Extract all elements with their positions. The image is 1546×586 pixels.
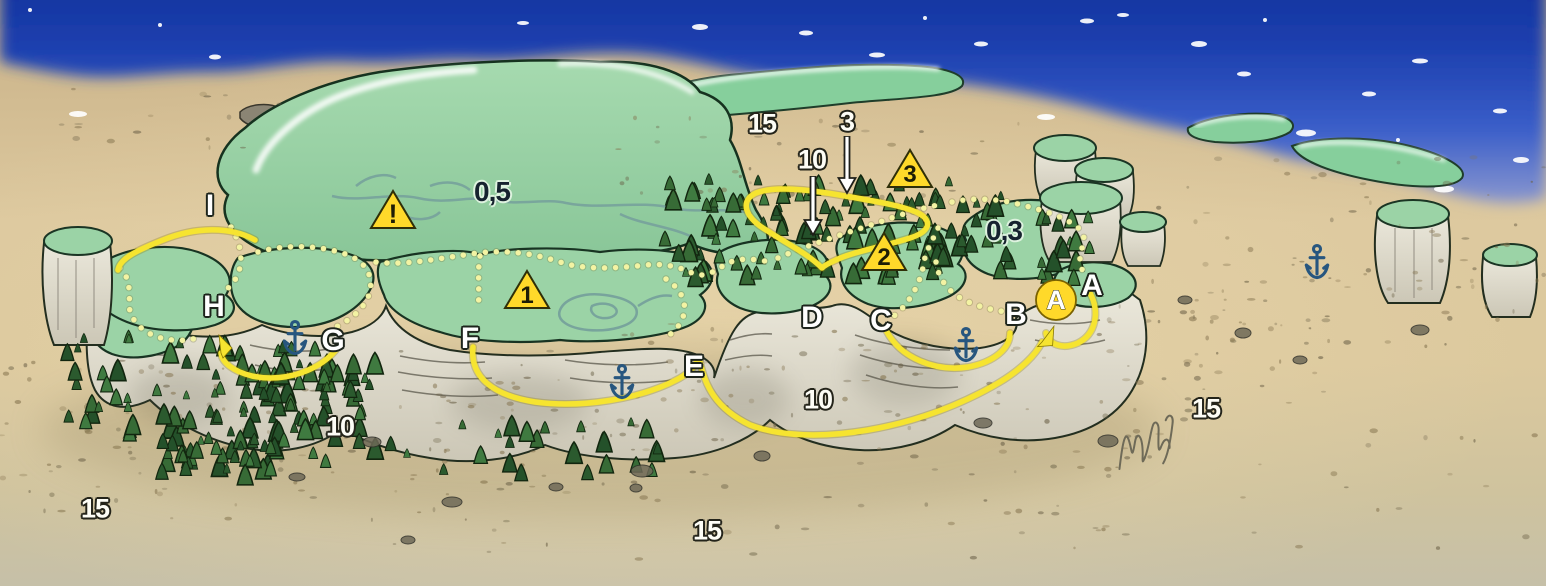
sand-speckle [1397,161,1401,165]
sand-speckle [223,94,228,96]
sand-speckle [1135,435,1139,438]
sand-speckle [31,361,35,364]
sand-speckle [546,350,554,353]
sand-speckle [887,143,896,147]
sand-speckle [602,482,605,485]
sand-speckle [1073,450,1081,453]
sand-speckle [595,409,599,413]
sand-speckle [310,496,318,499]
sand-speckle [898,363,903,368]
sand-speckle [1222,289,1224,293]
sand-speckle [861,380,870,382]
sand-speckle [723,530,732,535]
sand-speckle [1097,333,1102,336]
sand-speckle [227,115,232,120]
sand-speckle [399,405,402,409]
sand-speckle [59,406,66,411]
sand-speckle [630,332,634,336]
sand-speckle [442,460,448,464]
sand-speckle [15,400,22,404]
sand-speckle [999,450,1007,454]
sand-speckle [1531,181,1533,183]
sand-speckle [592,422,597,425]
sand-speckle [1180,417,1188,421]
sand-speckle [74,123,83,125]
sand-speckle [49,470,53,472]
sand-speckle [1124,456,1130,459]
sand-speckle [521,364,523,366]
sand-speckle [433,507,436,512]
sand-speckle [857,462,864,465]
sand-speckle [1186,186,1189,189]
sand-speckle [1106,349,1114,353]
sand-speckle [1363,273,1367,275]
sand-speckle [83,513,88,516]
sand-speckle [1195,299,1199,302]
sand-speckle [1365,443,1371,448]
sand-speckle [708,188,713,192]
sand-speckle [948,522,955,525]
sand-speckle [1532,433,1538,437]
sand-speckle [858,504,865,508]
sand-speckle [206,137,210,141]
sand-speckle [1151,279,1154,284]
sand-speckle [1460,259,1469,261]
sand-speckle [668,323,676,325]
sand-speckle [43,509,45,514]
sand-speckle [1223,264,1231,267]
sand-speckle [700,398,709,403]
sand-speckle [837,420,842,424]
sand-speckle [1104,467,1111,472]
sand-speckle [348,450,356,453]
sand-speckle [1299,261,1304,263]
sand-speckle [433,384,437,389]
sand-speckle [1441,311,1449,315]
sand-speckle [910,454,919,458]
sand-speckle [267,430,270,434]
sand-speckle [591,371,595,376]
sand-speckle [919,130,924,133]
sand-speckle [170,517,173,519]
sand-speckle [1024,445,1028,450]
sand-speckle [754,136,763,138]
sand-speckle [163,385,170,388]
sand-speckle [635,557,644,560]
sand-speckle [1284,172,1290,176]
sand-speckle [298,489,305,491]
sand-speckle [1514,223,1517,226]
sand-speckle [1240,496,1246,498]
sand-speckle [171,392,176,395]
sand-speckle [1328,277,1331,279]
sand-speckle [0,476,6,481]
sand-speckle [801,528,810,531]
sand-speckle [656,126,660,129]
sand-speckle [27,377,32,382]
sand-speckle [782,365,785,370]
sand-speckle [465,518,467,520]
sand-speckle [1205,336,1209,341]
sand-speckle [341,423,350,426]
sand-speckle [1122,533,1130,535]
sand-speckle [960,408,962,411]
sand-speckle [1144,456,1147,459]
sand-speckle [1242,323,1246,326]
sand-speckle [1376,508,1379,512]
sand-speckle [1470,155,1478,159]
sand-speckle [1399,224,1401,227]
sand-speckle [1135,380,1143,385]
sand-speckle [842,397,848,402]
sand-speckle [963,411,965,414]
sand-speckle [1309,327,1311,329]
sand-speckle [1225,236,1229,239]
sand-speckle [1423,435,1427,440]
sand-speckle [732,170,739,174]
sand-speckle [1050,465,1057,469]
sand-speckle [908,426,912,430]
sand-speckle [1344,486,1349,488]
sand-speckle [417,511,421,513]
sand-speckle [625,177,629,181]
sand-speckle [1056,505,1059,507]
sand-speckle [1180,310,1187,314]
sand-speckle [562,491,571,494]
sand-speckle [394,490,397,493]
sand-speckle [1133,429,1140,434]
sand-speckle [639,495,648,500]
sand-speckle [1366,268,1371,272]
sand-speckle [1495,246,1499,248]
sand-speckle [1004,511,1011,515]
sand-speckle [1202,262,1208,267]
map-illustration-canvas [0,0,1546,586]
sand-speckle [1364,196,1369,198]
sand-speckle [691,389,695,391]
sand-speckle [702,473,709,475]
sand-speckle [1413,271,1419,275]
sand-speckle [849,129,854,132]
sand-speckle [113,446,122,449]
sand-speckle [126,412,130,414]
sand-speckle [501,542,506,544]
sand-speckle [648,341,655,345]
sand-speckle [1189,316,1197,321]
sand-speckle [1100,400,1104,404]
sand-speckle [799,351,807,356]
sand-speckle [1270,366,1275,371]
sand-speckle [298,454,306,456]
sand-speckle [1447,473,1452,476]
sand-speckle [1360,182,1367,185]
sand-speckle [19,474,27,477]
sand-speckle [224,517,232,521]
sand-speckle [877,447,882,451]
sand-speckle [133,131,141,134]
sand-speckle [749,399,755,404]
sand-speckle [710,327,714,332]
sand-speckle [1011,349,1015,351]
sand-speckle [1121,447,1128,449]
sand-speckle [1280,324,1282,326]
sand-speckle [1470,279,1474,283]
sand-speckle [1102,413,1108,418]
sand-speckle [843,380,851,382]
sand-speckle [1370,428,1378,433]
sand-speckle [1321,391,1326,393]
sand-speckle [557,379,559,381]
sand-speckle [1214,370,1222,374]
sand-speckle [1202,388,1205,390]
sand-speckle [1122,378,1130,381]
sand-speckle [1252,532,1257,534]
sand-speckle [749,552,757,556]
sand-speckle [1306,318,1311,322]
sand-speckle [1093,527,1099,529]
sand-speckle [620,181,625,185]
sand-speckle [792,335,799,337]
sand-speckle [436,393,443,396]
sand-speckle [1273,158,1279,162]
sand-speckle [71,88,76,90]
sand-speckle [235,503,238,506]
sand-speckle [1495,317,1500,322]
sand-speckle [1429,230,1435,233]
sand-speckle [1222,309,1225,311]
sand-speckle [1199,364,1203,368]
sand-speckle [1244,281,1249,283]
sand-speckle [393,543,397,545]
sand-speckle [138,472,141,475]
sand-speckle [480,480,488,483]
sand-speckle [1013,347,1021,350]
sand-speckle [59,123,65,125]
sand-speckle [842,153,850,157]
sand-speckle [622,334,628,337]
sand-speckle [832,125,839,128]
sand-speckle [1193,219,1197,224]
sand-speckle [777,142,782,146]
sand-speckle [677,389,682,392]
sand-speckle [302,407,308,410]
sand-speckle [74,126,82,128]
sand-speckle [523,377,531,379]
sand-speckle [529,486,535,488]
sand-speckle [1195,353,1199,356]
sand-speckle [1073,547,1075,550]
sand-speckle [1230,338,1235,342]
left-pillars [42,227,112,345]
sand-speckle [710,338,718,342]
sand-speckle [894,370,897,373]
sand-speckle [764,368,770,370]
sand-speckle [1436,546,1440,550]
sand-speckle [1309,279,1315,283]
sand-speckle [277,103,282,105]
sand-speckle [858,344,864,347]
sand-speckle [1145,319,1152,323]
sand-speckle [1133,408,1136,412]
sand-speckle [1263,299,1267,302]
sand-speckle [530,450,536,452]
sand-speckle [511,382,515,385]
sand-speckle [1044,419,1049,424]
sand-speckle [1216,352,1218,355]
sand-speckle [1185,409,1193,413]
sand-speckle [754,201,758,205]
sand-speckle [1101,528,1105,532]
sand-speckle [5,422,9,425]
sand-speckle [446,400,451,403]
sand-speckle [506,482,513,486]
sand-speckle [791,413,793,418]
sand-speckle [829,182,833,184]
sand-speckle [1147,310,1155,312]
sand-speckle [3,372,9,376]
sand-speckle [925,502,929,506]
sand-speckle [203,95,211,97]
sand-speckle [1322,318,1331,322]
sand-speckle [615,148,621,150]
sand-speckle [728,394,733,398]
sand-speckle [1162,377,1167,380]
sand-speckle [1487,194,1489,196]
sand-speckle [1456,286,1461,289]
sand-speckle [1385,340,1391,343]
sand-speckle [1042,357,1046,359]
sand-speckle [919,373,924,375]
sand-speckle [1331,471,1338,476]
sand-speckle [1193,315,1195,319]
sand-speckle [551,409,559,412]
sand-speckle [410,478,414,480]
sand-speckle [1017,122,1019,126]
sand-speckle [610,434,612,438]
sand-speckle [24,363,28,367]
sand-speckle [1424,345,1427,349]
sand-speckle [739,175,742,178]
sand-speckle [689,116,691,121]
sand-speckle [1239,321,1242,323]
sand-speckle [1286,402,1292,404]
sand-speckle [278,467,284,472]
sand-speckle [642,448,650,451]
sand-speckle [1274,323,1277,326]
sand-speckle [8,366,14,370]
sand-speckle [496,488,504,491]
sand-speckle [994,403,1000,405]
sand-speckle [1386,287,1392,291]
sand-speckle [240,147,246,149]
sand-speckle [107,139,115,144]
sand-speckle [512,386,520,390]
sand-speckle [1295,545,1303,549]
sand-speckle [1077,466,1085,469]
sand-speckle [165,373,174,377]
sand-speckle [1330,218,1334,223]
sand-speckle [542,475,547,477]
sand-speckle [435,422,442,424]
sand-speckle [436,468,439,472]
sand-speckle [1026,408,1029,410]
sand-speckle [1541,166,1545,168]
sand-speckle [1001,442,1005,446]
sand-speckle [1127,365,1130,367]
sand-speckle [28,490,30,493]
sand-speckle [266,411,271,415]
sand-speckle [1449,182,1453,185]
sand-speckle [895,413,900,417]
sand-speckle [582,435,584,440]
sand-speckle [1504,243,1511,248]
sand-speckle [1349,210,1357,213]
sand-speckle [697,380,701,383]
sand-speckle [1473,439,1475,443]
sand-speckle [546,543,548,547]
sand-speckle [746,366,749,369]
sand-speckle [503,520,510,522]
sand-speckle [1327,339,1330,343]
sand-speckle [1325,315,1330,317]
sand-speckle [552,432,557,435]
sand-speckle [1268,326,1274,331]
sand-speckle [1125,435,1132,438]
sand-speckle [1392,293,1395,297]
sand-speckle [1106,474,1111,478]
sand-speckle [1184,362,1190,367]
sand-speckle [446,493,449,495]
sand-speckle [1208,292,1214,294]
sand-speckle [1434,157,1441,161]
sand-speckle [970,152,978,155]
sand-speckle [47,464,51,466]
sand-speckle [129,457,136,460]
sand-speckle [1013,437,1017,439]
sand-speckle [721,484,729,489]
sand-speckle [984,499,988,501]
sand-speckle [1309,270,1313,274]
sand-speckle [775,525,780,530]
sand-speckle [56,465,62,468]
sand-speckle [615,364,618,366]
sand-speckle [1416,280,1423,282]
sand-speckle [433,438,441,443]
sand-speckle [148,364,154,369]
sand-speckle [749,167,752,170]
sand-speckle [128,451,132,455]
sand-speckle [1417,287,1423,291]
sand-speckle [631,449,635,451]
sand-speckle [1190,310,1195,314]
sand-speckle [72,136,80,141]
sand-speckle [921,345,928,349]
sand-speckle [1279,359,1281,363]
sand-speckle [1119,304,1121,308]
sand-speckle [739,366,741,371]
sand-speckle [468,405,475,408]
sand-speckle [861,130,870,133]
sand-speckle [823,496,832,498]
sand-speckle [1541,273,1546,277]
sand-speckle [1038,511,1044,514]
sand-speckle [222,407,225,410]
sand-speckle [884,410,893,413]
sand-speckle [507,402,514,406]
sand-speckle [487,551,492,553]
sand-speckle [666,359,674,364]
sand-speckle [1485,304,1488,309]
